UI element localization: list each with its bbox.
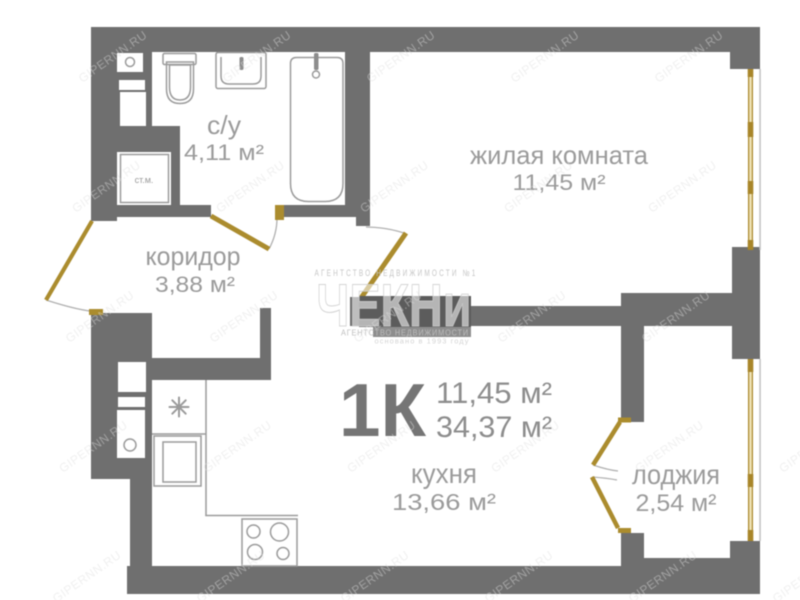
svg-text:3,88 м²: 3,88 м² [155,272,235,297]
svg-text:с/у: с/у [207,110,241,140]
svg-text:4,11 м²: 4,11 м² [184,140,264,165]
svg-text:кухня: кухня [411,458,477,489]
svg-text:11,45 м²: 11,45 м² [436,377,552,410]
svg-text:коридор: коридор [146,241,241,271]
svg-text:ст.м.: ст.м. [135,175,154,185]
svg-text:основано в 1993 году: основано в 1993 году [375,339,470,346]
svg-text:13,66 м²: 13,66 м² [392,489,496,515]
svg-text:2,54 м²: 2,54 м² [636,490,717,517]
